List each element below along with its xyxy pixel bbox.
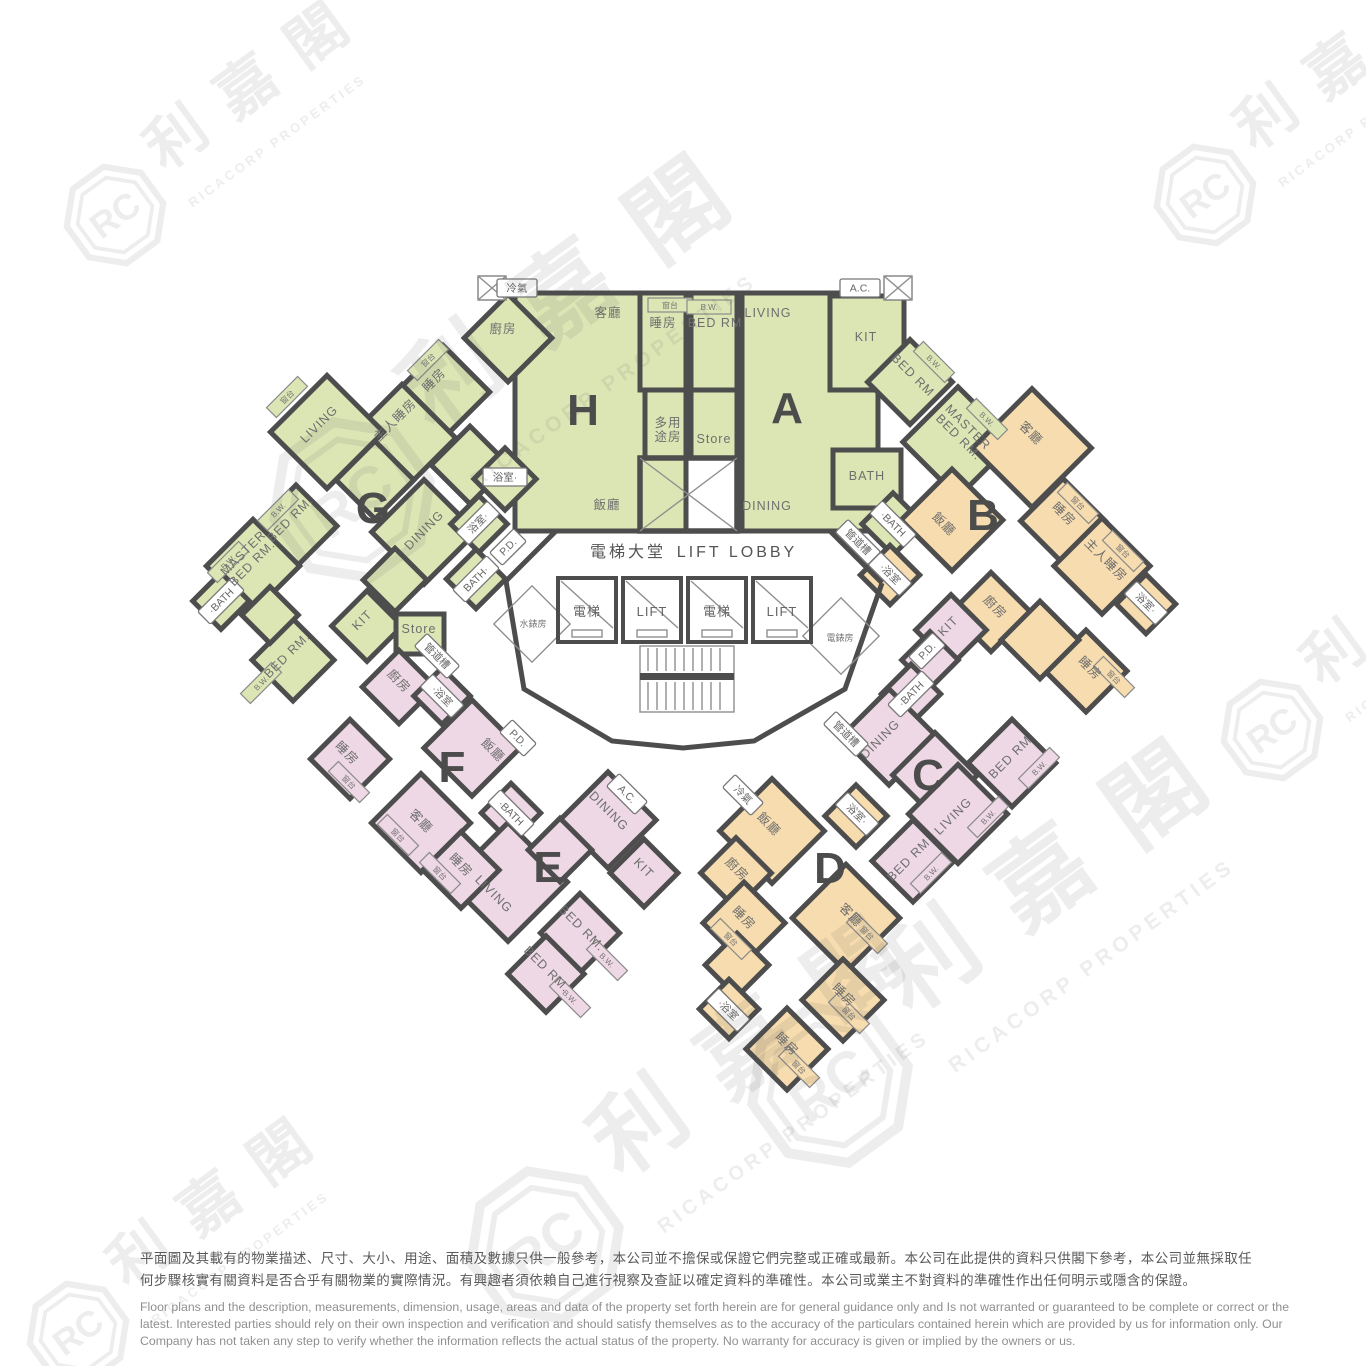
room-label: 途房 bbox=[654, 429, 681, 444]
lift-lobby-title-zh: 電梯大堂 bbox=[590, 543, 666, 561]
boxed-label-text: A.C. bbox=[850, 283, 870, 295]
bay-window-label: 窗台 bbox=[662, 300, 678, 310]
watermark: RC利嘉閣RICACORP PROPERTIES bbox=[1133, 0, 1366, 259]
watermark: RC利嘉閣RICACORP PROPERTIES bbox=[43, 0, 406, 279]
room-label: Store bbox=[697, 432, 732, 446]
disclaimer-block: 平面圖及其載有的物業描述、尺寸、大小、用途、面積及數據只供一般參考，本公司並不擔… bbox=[140, 1248, 1236, 1350]
watermark-layer: RC利嘉閣RICACORP PROPERTIESRC利嘉閣RICACORP PR… bbox=[6, 0, 1366, 1366]
boxed-label: A.C. bbox=[840, 279, 880, 297]
unit-F-letter: F bbox=[439, 743, 466, 792]
lift-label: LIFT bbox=[637, 604, 668, 619]
room-label: KIT bbox=[855, 330, 877, 344]
watermark-monogram: RC bbox=[1239, 698, 1305, 762]
watermark-cjk: 利嘉閣 bbox=[1289, 490, 1366, 697]
bay-window: 窗台 bbox=[648, 298, 692, 312]
unit-E-letter: E bbox=[533, 843, 562, 892]
watermark-monogram: RC bbox=[45, 1300, 111, 1364]
lift-shaft: 電梯 bbox=[558, 578, 616, 642]
meter-room-label: 電錶房 bbox=[826, 632, 853, 643]
unit-A-letter: A bbox=[771, 384, 803, 433]
unit-B-letter: B bbox=[967, 491, 999, 540]
disclaimer-zh-line-2: 何步驟核實有關資料是否合乎有關物業的實際情況。有興趣者須依賴自己進行視察及查証以… bbox=[140, 1270, 1236, 1292]
lift-label: 電梯 bbox=[703, 604, 731, 619]
room-label: BATH bbox=[849, 469, 885, 483]
room-label: Store bbox=[402, 622, 437, 636]
unit-A-room bbox=[691, 390, 737, 458]
room-label: LIVING bbox=[745, 306, 792, 320]
lift-shafts: 電梯LIFT電梯LIFT bbox=[558, 578, 811, 642]
room-label: 飯廳 bbox=[593, 497, 620, 512]
unit-C-letter: C bbox=[912, 751, 944, 800]
watermark-monogram: RC bbox=[1172, 163, 1238, 227]
disclaimer-en-line-1: Floor plans and the description, measure… bbox=[140, 1299, 1236, 1316]
disclaimer-en-line-3: Company has not taken any step to verify… bbox=[140, 1333, 1236, 1350]
lift-shaft: LIFT bbox=[623, 578, 681, 642]
lift-label: LIFT bbox=[767, 604, 798, 619]
unit-D-letter: D bbox=[814, 844, 846, 893]
meter-room-label: 水錶房 bbox=[519, 618, 546, 629]
room-label: DINING bbox=[742, 499, 792, 513]
watermark-monogram: RC bbox=[82, 183, 148, 247]
room-label: 多用 bbox=[654, 416, 681, 430]
lift-lobby-title-en: LIFT LOBBY bbox=[677, 544, 797, 561]
disclaimer-en-line-2: latest. Interested parties should rely o… bbox=[140, 1316, 1236, 1333]
floor-plan-svg: 電梯LIFT電梯LIFT 窗台窗台B.W.B.W.B.W.窗台窗台窗台窗台B.W… bbox=[0, 0, 1366, 1366]
lift-shaft: 電梯 bbox=[688, 578, 746, 642]
disclaimer-zh-line-1: 平面圖及其載有的物業描述、尺寸、大小、用途、面積及數據只供一般參考，本公司並不擔… bbox=[140, 1248, 1236, 1270]
floor-plan-page: 電梯LIFT電梯LIFT 窗台窗台B.W.B.W.B.W.窗台窗台窗台窗台B.W… bbox=[0, 0, 1366, 1366]
staircase bbox=[640, 646, 734, 712]
disclaimer-en: Floor plans and the description, measure… bbox=[140, 1299, 1236, 1350]
lift-label: 電梯 bbox=[573, 604, 601, 619]
lift-shaft: LIFT bbox=[753, 578, 811, 642]
